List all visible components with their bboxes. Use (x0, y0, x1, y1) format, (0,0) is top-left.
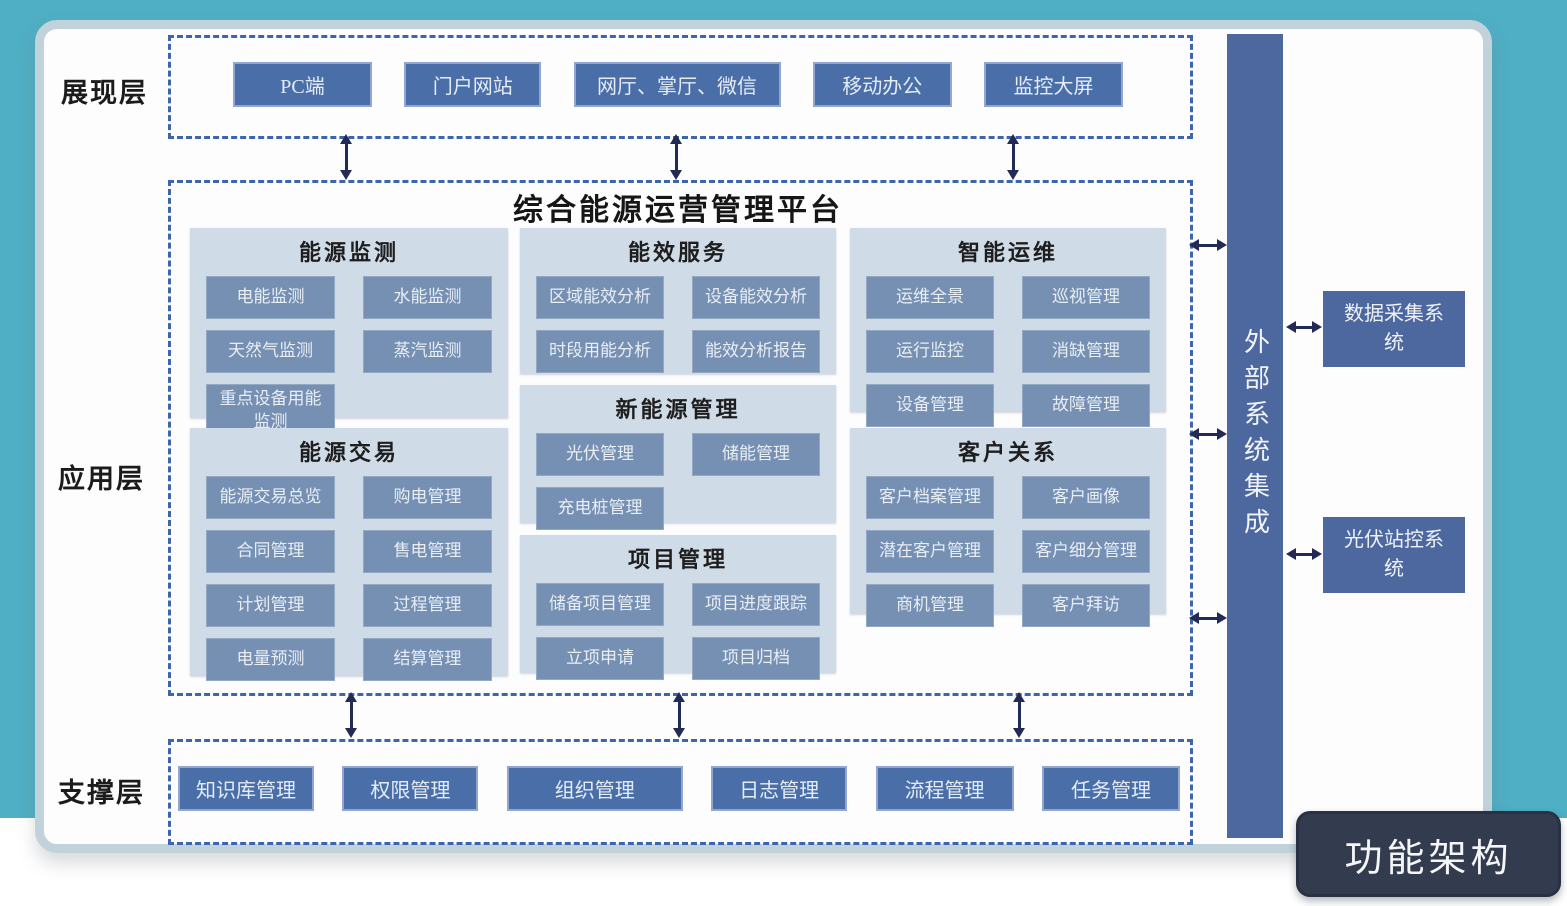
module-box: 区域能效分析 (536, 276, 664, 319)
group-title: 项目管理 (536, 542, 820, 574)
support-box-process: 流程管理 (876, 766, 1014, 811)
group-items: 储备项目管理 项目进度跟踪 立项申请 项目归档 (536, 583, 820, 680)
module-box: 客户拜访 (1022, 584, 1150, 627)
group-items: 运维全景 巡视管理 运行监控 消缺管理 设备管理 故障管理 (866, 276, 1150, 427)
group-panel-intelligent-om: 智能运维 运维全景 巡视管理 运行监控 消缺管理 设备管理 故障管理 (850, 228, 1166, 412)
presentation-box-monitor-screen: 监控大屏 (984, 62, 1123, 107)
group-panel-new-energy: 新能源管理 光伏管理 储能管理 充电桩管理 (520, 385, 836, 523)
module-box: 客户档案管理 (866, 476, 994, 519)
module-box: 立项申请 (536, 637, 664, 680)
group-items: 光伏管理 储能管理 充电桩管理 (536, 433, 820, 530)
module-box: 客户细分管理 (1022, 530, 1150, 573)
group-items: 电能监测 水能监测 天然气监测 蒸汽监测 重点设备用能监测 (206, 276, 492, 438)
module-box: 设备能效分析 (692, 276, 820, 319)
support-box-logs: 日志管理 (711, 766, 847, 811)
group-title: 能源监测 (206, 235, 492, 267)
group-title: 智能运维 (866, 235, 1150, 267)
double-arrow-vertical (1018, 702, 1021, 728)
module-box: 水能监测 (363, 276, 492, 319)
double-arrow-horizontal (1199, 433, 1217, 436)
badge-functional-architecture: 功能架构 (1296, 811, 1561, 897)
module-box: 购电管理 (363, 476, 492, 519)
presentation-box-portal: 门户网站 (404, 62, 541, 107)
double-arrow-horizontal (1199, 617, 1217, 620)
support-box-organization: 组织管理 (507, 766, 683, 811)
module-box: 电能监测 (206, 276, 335, 319)
module-box: 过程管理 (363, 584, 492, 627)
support-box-knowledge-base: 知识库管理 (178, 766, 314, 811)
group-items: 客户档案管理 客户画像 潜在客户管理 客户细分管理 商机管理 客户拜访 (866, 476, 1150, 627)
support-items-row: 知识库管理 权限管理 组织管理 日志管理 流程管理 任务管理 (178, 766, 1180, 811)
group-items: 区域能效分析 设备能效分析 时段用能分析 能效分析报告 (536, 276, 820, 373)
group-panel-customer-relations: 客户关系 客户档案管理 客户画像 潜在客户管理 客户细分管理 商机管理 客户拜访 (850, 428, 1166, 614)
presentation-items-row: PC端 门户网站 网厅、掌厅、微信 移动办公 监控大屏 (233, 62, 1123, 107)
module-box: 运维全景 (866, 276, 994, 319)
module-box: 储能管理 (692, 433, 820, 476)
module-box: 能源交易总览 (206, 476, 335, 519)
module-box: 储备项目管理 (536, 583, 664, 626)
platform-title: 综合能源运营管理平台 (168, 185, 1188, 229)
module-box: 客户画像 (1022, 476, 1150, 519)
external-systems-bar-label: 外部系统集成 (1237, 328, 1274, 544)
double-arrow-horizontal (1199, 244, 1217, 247)
group-items: 能源交易总览 购电管理 合同管理 售电管理 计划管理 过程管理 电量预测 结算管… (206, 476, 492, 681)
module-box: 计划管理 (206, 584, 335, 627)
layer-label-support: 支撑层 (58, 771, 145, 810)
module-box: 巡视管理 (1022, 276, 1150, 319)
presentation-box-pc: PC端 (233, 62, 372, 107)
module-box: 售电管理 (363, 530, 492, 573)
external-systems-bar: 外部系统集成 (1227, 34, 1283, 838)
module-box: 时段用能分析 (536, 330, 664, 373)
module-box: 结算管理 (363, 638, 492, 681)
double-arrow-vertical (678, 702, 681, 728)
module-box: 天然气监测 (206, 330, 335, 373)
module-box: 运行监控 (866, 330, 994, 373)
group-title: 能效服务 (536, 235, 820, 267)
presentation-box-mobile-office: 移动办公 (813, 62, 952, 107)
external-system-data-acquisition: 数据采集系统 (1323, 291, 1465, 367)
group-panel-energy-monitoring: 能源监测 电能监测 水能监测 天然气监测 蒸汽监测 重点设备用能监测 (190, 228, 508, 418)
module-box: 项目归档 (692, 637, 820, 680)
module-box: 蒸汽监测 (363, 330, 492, 373)
double-arrow-horizontal (1296, 553, 1312, 556)
module-box: 光伏管理 (536, 433, 664, 476)
external-system-pv-station-control: 光伏站控系统 (1323, 517, 1465, 593)
support-box-permissions: 权限管理 (342, 766, 478, 811)
presentation-box-halls-wechat: 网厅、掌厅、微信 (574, 62, 781, 107)
group-title: 客户关系 (866, 435, 1150, 467)
module-box: 商机管理 (866, 584, 994, 627)
group-panel-energy-efficiency: 能效服务 区域能效分析 设备能效分析 时段用能分析 能效分析报告 (520, 228, 836, 374)
double-arrow-vertical (1012, 144, 1015, 170)
module-box: 项目进度跟踪 (692, 583, 820, 626)
group-title: 能源交易 (206, 435, 492, 467)
module-box: 电量预测 (206, 638, 335, 681)
module-box: 潜在客户管理 (866, 530, 994, 573)
support-box-tasks: 任务管理 (1042, 766, 1180, 811)
module-box: 合同管理 (206, 530, 335, 573)
group-panel-project-management: 项目管理 储备项目管理 项目进度跟踪 立项申请 项目归档 (520, 535, 836, 673)
module-box: 能效分析报告 (692, 330, 820, 373)
group-title: 新能源管理 (536, 392, 820, 424)
module-box: 充电桩管理 (536, 487, 664, 530)
double-arrow-vertical (345, 144, 348, 170)
double-arrow-vertical (350, 702, 353, 728)
module-box: 故障管理 (1022, 384, 1150, 427)
module-box: 设备管理 (866, 384, 994, 427)
layer-label-presentation: 展现层 (61, 71, 148, 110)
double-arrow-horizontal (1296, 326, 1312, 329)
group-panel-energy-trading: 能源交易 能源交易总览 购电管理 合同管理 售电管理 计划管理 过程管理 电量预… (190, 428, 508, 676)
functional-architecture-diagram: 展现层 应用层 支撑层 PC端 门户网站 网厅、掌厅、微信 移动办公 监控大屏 … (0, 0, 1567, 906)
module-box: 消缺管理 (1022, 330, 1150, 373)
layer-label-application: 应用层 (58, 457, 145, 496)
double-arrow-vertical (675, 144, 678, 170)
